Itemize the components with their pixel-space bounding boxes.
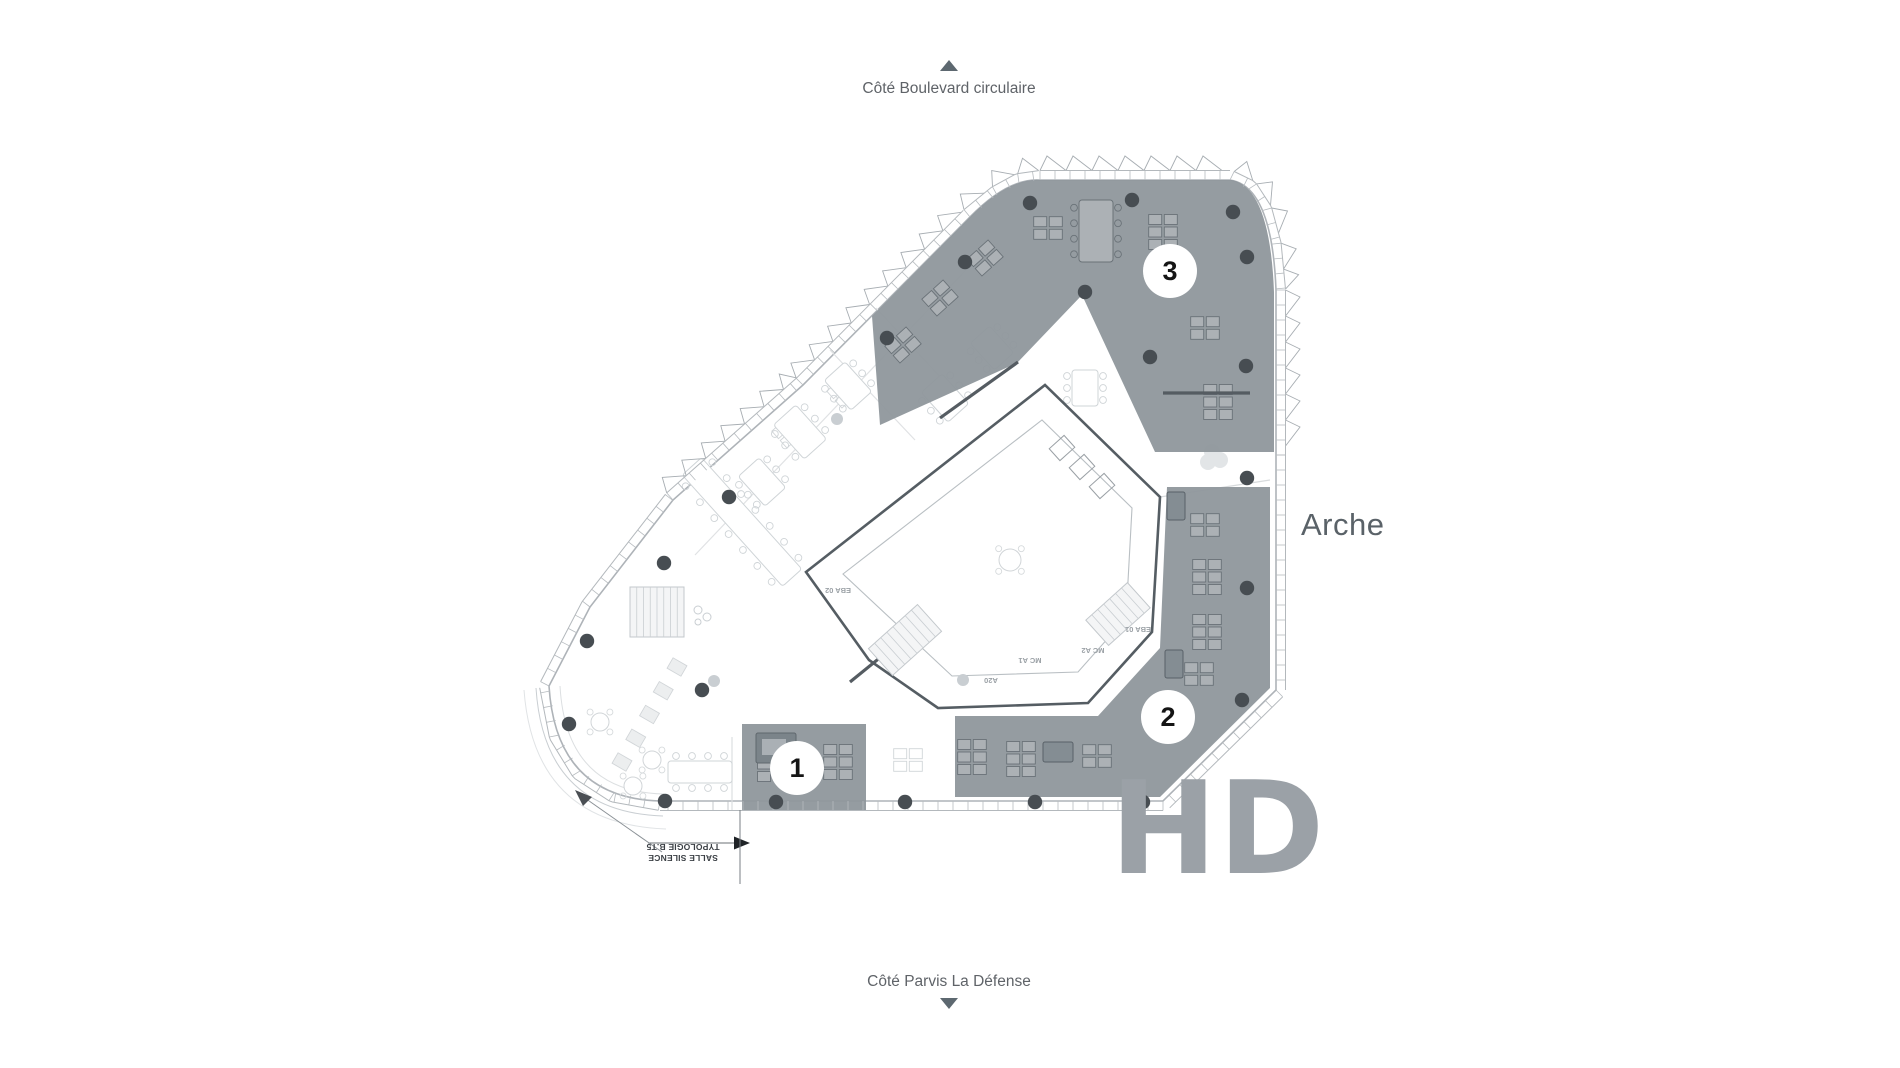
zone-marker-2-number: 2: [1160, 702, 1175, 733]
annotation-line-2: TYPOLOGIE B.T5: [624, 840, 742, 851]
zone-marker-1-number: 1: [789, 753, 804, 784]
zone-marker-3-number: 3: [1162, 256, 1177, 287]
side-label-top: Côté Boulevard circulaire: [862, 80, 1035, 98]
zone-marker-3[interactable]: 3: [1143, 244, 1197, 298]
room-label: MC A2: [1081, 646, 1104, 655]
building-side-label: Arche: [1301, 507, 1384, 543]
room-label: EBA 02: [825, 586, 851, 595]
room-label: MC A1: [1018, 656, 1041, 665]
room-label: EBA 01: [1125, 625, 1151, 634]
hd-watermark: HD: [1110, 766, 1325, 894]
down-arrow-icon: [940, 998, 958, 1009]
annotation-line-1: SALLE SILENCE: [624, 851, 742, 862]
floor-plan-drawing: EBA 02 EBA 01 MC A1 MC A2 A20: [0, 0, 1900, 1068]
floor-plan-page: EBA 02 EBA 01 MC A1 MC A2 A20 Côté Boule…: [0, 0, 1900, 1068]
side-label-bottom: Côté Parvis La Défense: [867, 973, 1031, 991]
up-arrow-icon: [940, 60, 958, 71]
zone-marker-2[interactable]: 2: [1141, 690, 1195, 744]
silence-room-annotation: SALLE SILENCE TYPOLOGIE B.T5: [624, 840, 742, 863]
room-label: A20: [984, 676, 998, 685]
zone-marker-1[interactable]: 1: [770, 741, 824, 795]
